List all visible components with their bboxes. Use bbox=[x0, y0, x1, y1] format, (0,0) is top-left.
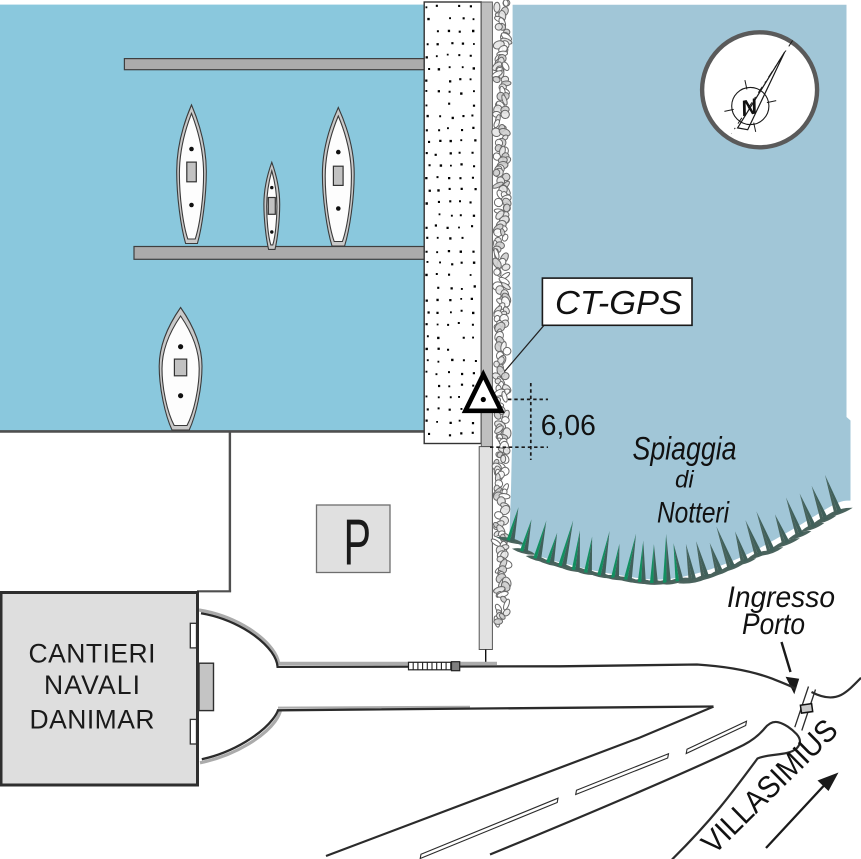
svg-text:Notteri: Notteri bbox=[657, 497, 730, 530]
svg-text:CT-GPS: CT-GPS bbox=[555, 285, 682, 322]
svg-text:CANTIERI: CANTIERI bbox=[29, 639, 156, 669]
svg-text:NAVALI: NAVALI bbox=[44, 670, 140, 700]
svg-text:VILLASIMIUS: VILLASIMIUS bbox=[694, 712, 844, 859]
svg-text:DANIMAR: DANIMAR bbox=[30, 705, 155, 735]
svg-text:Spiaggia: Spiaggia bbox=[633, 430, 737, 466]
svg-text:P: P bbox=[344, 507, 372, 579]
svg-text:di: di bbox=[675, 467, 694, 494]
svg-text:Porto: Porto bbox=[742, 608, 805, 641]
svg-text:6,06: 6,06 bbox=[541, 410, 596, 442]
